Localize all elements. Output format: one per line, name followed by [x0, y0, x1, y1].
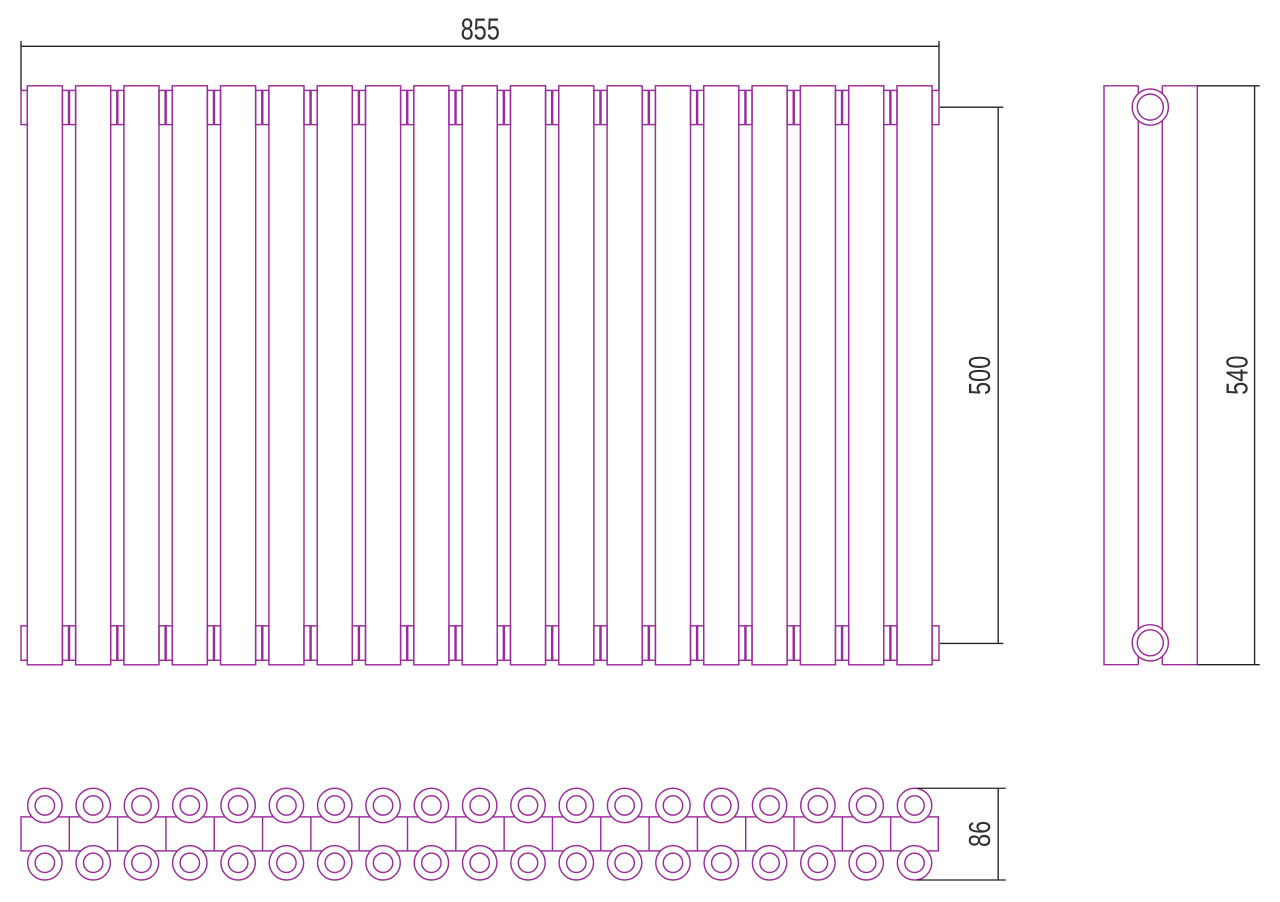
svg-text:540: 540	[1219, 356, 1254, 395]
svg-text:500: 500	[962, 356, 997, 395]
svg-text:86: 86	[962, 821, 997, 847]
svg-text:855: 855	[461, 11, 500, 46]
